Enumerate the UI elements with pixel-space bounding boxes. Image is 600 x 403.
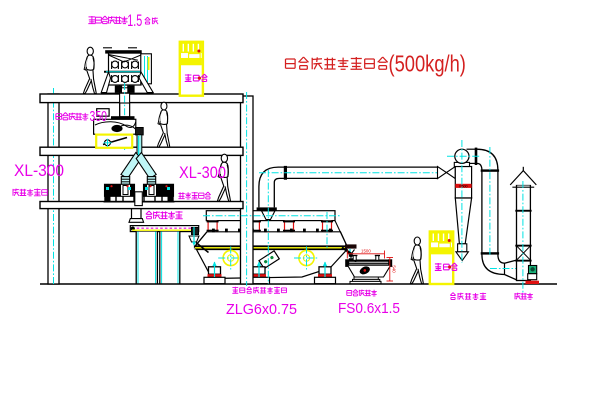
- svg-text:ZLG6x0.75: ZLG6x0.75: [226, 301, 297, 318]
- svg-text:F500: F500: [459, 184, 467, 188]
- svg-text:1.5: 1.5: [127, 11, 142, 30]
- svg-text:XL-300: XL-300: [14, 162, 64, 180]
- svg-text:1500: 1500: [361, 249, 371, 254]
- svg-text:FS0.6x1.5: FS0.6x1.5: [338, 300, 400, 317]
- svg-text:(500kg/h): (500kg/h): [389, 51, 466, 77]
- svg-text:XL-300: XL-300: [179, 164, 226, 182]
- svg-text:540: 540: [392, 265, 397, 273]
- svg-text:350: 350: [90, 108, 108, 125]
